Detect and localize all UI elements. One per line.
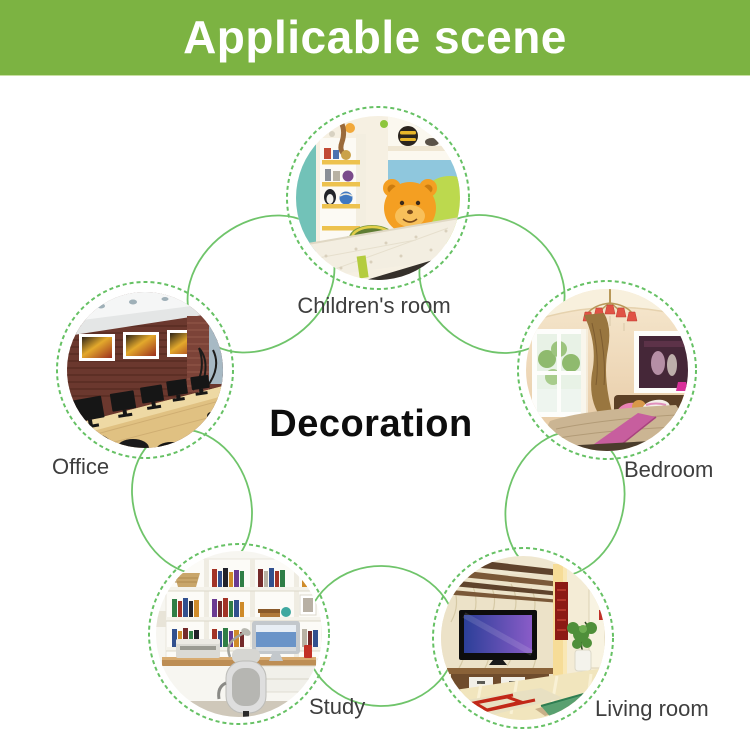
living-room-illustration — [441, 556, 605, 720]
scene-label-study: Study — [309, 694, 365, 720]
scene-label-office: Office — [52, 454, 109, 480]
study-illustration — [156, 551, 322, 717]
scene-photo-childrens-room — [296, 116, 460, 280]
scene-photo-bedroom — [526, 289, 688, 451]
scene-label-living-room: Living room — [595, 696, 709, 722]
scene-photo-study — [156, 551, 322, 717]
page: Applicable scene — [0, 0, 750, 750]
scene-photo-living-room — [441, 556, 605, 720]
diagram-center-title: Decoration — [221, 403, 521, 446]
office-illustration — [67, 292, 223, 448]
scene-label-bedroom: Bedroom — [624, 457, 713, 483]
bedroom-illustration — [526, 289, 688, 451]
scene-photo-office — [67, 292, 223, 448]
childrens-room-illustration — [296, 116, 460, 280]
scene-label-childrens-room: Children's room — [254, 293, 494, 319]
